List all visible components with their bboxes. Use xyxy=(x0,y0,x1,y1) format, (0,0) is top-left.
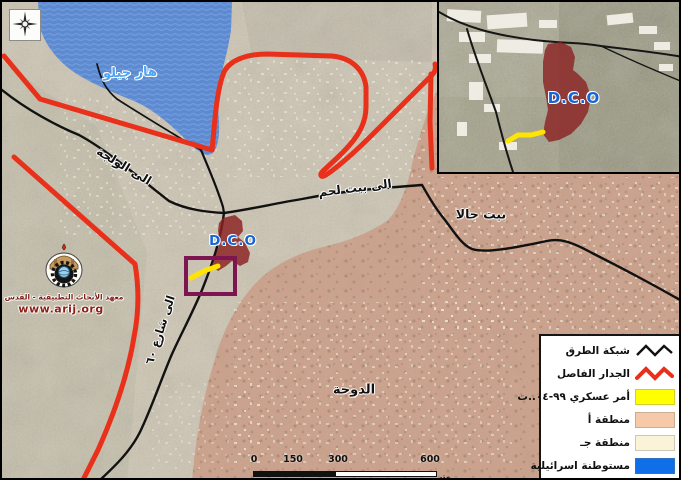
scale-tick-150: 150 xyxy=(283,454,303,465)
label-har-gilo: هار جيلو xyxy=(103,65,158,82)
inset-dco-label: D.C.O xyxy=(548,89,601,107)
map-canvas: D.C.O هار جيلو D.C.O الى الولجة الى بيت … xyxy=(0,0,681,480)
area-a-swatch xyxy=(635,412,675,428)
legend-item-military-order: أمر عسكري ٩٩-٠٤..ت xyxy=(543,385,675,408)
scale-tick-300: 300 xyxy=(328,454,348,465)
arij-logo-icon xyxy=(42,243,86,291)
arij-website: www.arij.org xyxy=(18,303,103,316)
scale-tick-0: 0 xyxy=(251,454,258,465)
legend-item-separation-wall: الجدار الفاصل xyxy=(543,362,675,385)
legend-label: الجدار الفاصل xyxy=(557,368,630,380)
legend-label: أمر عسكري ٩٩-٠٤..ت xyxy=(517,391,630,403)
legend-label: منطقة أ xyxy=(588,414,630,426)
legend: شبكة الطرق الجدار الفاصل أمر عسكري ٩٩-٠٤… xyxy=(539,334,681,480)
compass-rose-icon xyxy=(11,10,39,38)
inset-map: D.C.O xyxy=(437,2,681,174)
compass-box xyxy=(9,9,41,41)
scale-unit: متر xyxy=(438,472,450,480)
area-c-swatch xyxy=(635,435,675,451)
legend-label: منطقة جـ xyxy=(580,437,630,449)
arij-org-name: معهد الأبحاث التطبيقية - القدس xyxy=(5,293,124,302)
military-order-swatch xyxy=(635,389,675,405)
inset-map-graphic xyxy=(439,2,681,172)
israeli-settlement-swatch xyxy=(635,458,675,474)
legend-label: شبكة الطرق xyxy=(566,345,630,357)
separation-wall-symbol-icon xyxy=(635,365,675,382)
label-doha: الدوحة xyxy=(333,383,375,398)
legend-item-israeli-settlement: مستوطنة اسرائيلية xyxy=(543,454,675,477)
legend-item-area-a: منطقة أ xyxy=(543,408,675,431)
scale-tick-600: 600 xyxy=(420,454,440,465)
legend-item-road-network: شبكة الطرق xyxy=(543,339,675,362)
label-dco-main: D.C.O xyxy=(209,233,257,249)
legend-item-area-c: منطقة جـ xyxy=(543,431,675,454)
scale-bar-white-segment xyxy=(335,471,437,477)
scale-bar-black-segment xyxy=(253,471,335,477)
road-network-symbol-icon xyxy=(635,342,675,359)
legend-label: مستوطنة اسرائيلية xyxy=(531,460,630,472)
label-beit-jala: بيت جالا xyxy=(456,207,506,222)
